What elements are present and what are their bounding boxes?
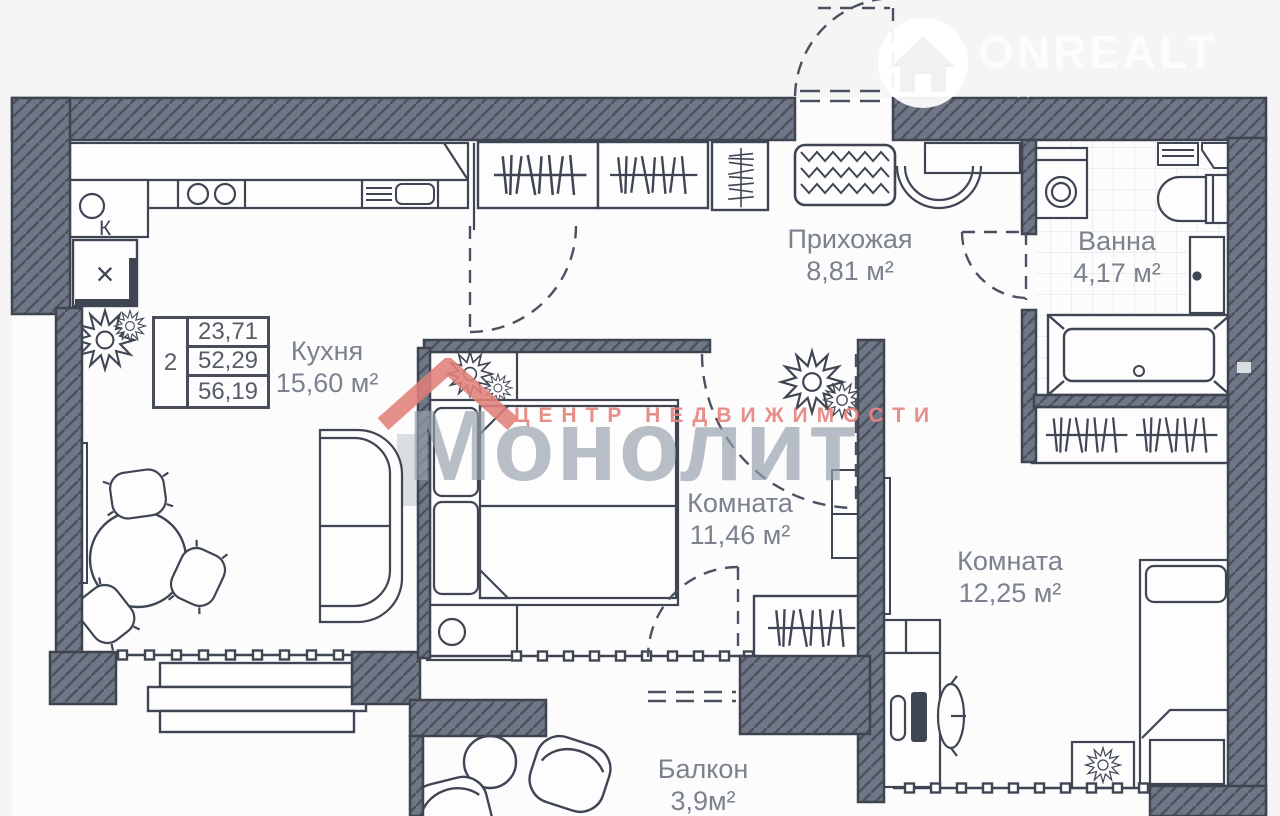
wall-right [1228, 138, 1266, 816]
room-name: Балкон [658, 754, 749, 784]
wall-below-tub [1034, 395, 1228, 407]
bed-stool [427, 605, 517, 660]
room-label-room2: Комната 12,25 м² [957, 546, 1063, 610]
toilet-icon [1158, 175, 1228, 223]
wall-bedroom-top [424, 340, 710, 352]
wall-balcony-left [410, 736, 423, 816]
room-name: Кухня [291, 336, 363, 366]
wall-bath-left-lower [1022, 310, 1036, 462]
floor-plan-page: К × [0, 0, 1280, 816]
house-icon [876, 16, 970, 110]
room-name: Ванна [1078, 226, 1156, 256]
room-area: 11,46 м² [687, 520, 793, 552]
wall-window-right [352, 652, 420, 704]
room-label-balcony: Балкон 3,9м² [658, 754, 749, 816]
area-living: 23,71 [189, 319, 267, 348]
vent-shaft-mark: × [96, 256, 115, 292]
room-label-bathroom: Ванна 4,17 м² [1073, 226, 1161, 290]
brand-name: ONREALT [978, 27, 1221, 78]
room-area: 3,9м² [658, 786, 749, 816]
kitchen-riser-mark: К [99, 217, 112, 240]
room-name: Прихожая [787, 224, 912, 254]
single-bed [1140, 560, 1232, 790]
doormat-icon [795, 145, 895, 205]
bath-cabinet-door [1190, 237, 1224, 313]
wall-bottom-left [50, 652, 116, 704]
room-area: 4,17 м² [1073, 258, 1161, 290]
wall-top-left [12, 98, 795, 140]
room-name: Комната [957, 546, 1063, 576]
wall-left-lower [56, 308, 82, 656]
wall-balcony-right [740, 656, 870, 734]
balcony-steps [148, 663, 366, 732]
rooms-count: 2 [155, 319, 189, 406]
washing-machine-icon [1035, 148, 1087, 218]
wall-vent-mark [1237, 362, 1251, 373]
brand-logo: ONREALT НЕДВИЖИМОСТЬ [876, 16, 1221, 110]
brand-tagline: НЕДВИЖИМОСТЬ [978, 79, 1221, 99]
area-main: 52,29 [189, 348, 267, 377]
hall-rack [712, 142, 768, 210]
bath-shelf [1158, 143, 1198, 165]
room-label-hallway: Прихожая 8,81 м² [787, 224, 912, 288]
room-label-kitchen: Кухня 15,60 м² [276, 336, 379, 400]
wall-left-upper [12, 98, 70, 314]
vent-shaft-box: × [73, 240, 137, 306]
room-area: 8,81 м² [787, 256, 912, 288]
room-area: 15,60 м² [276, 368, 379, 400]
sofa [320, 430, 402, 622]
wall-balcony-corner [410, 700, 546, 736]
bathtub-icon [1048, 315, 1230, 395]
area-total: 56,19 [189, 377, 267, 406]
room-area: 12,25 м² [957, 578, 1063, 610]
area-summary-table: 2 23,71 52,29 56,19 [152, 316, 270, 409]
wall-bottom-right [1150, 786, 1266, 816]
watermark-subtitle: ЦЕНТР НЕДВИЖИМОСТИ [514, 404, 938, 428]
monitor-icon [911, 692, 927, 742]
wall-bath-left-upper [1022, 140, 1036, 234]
